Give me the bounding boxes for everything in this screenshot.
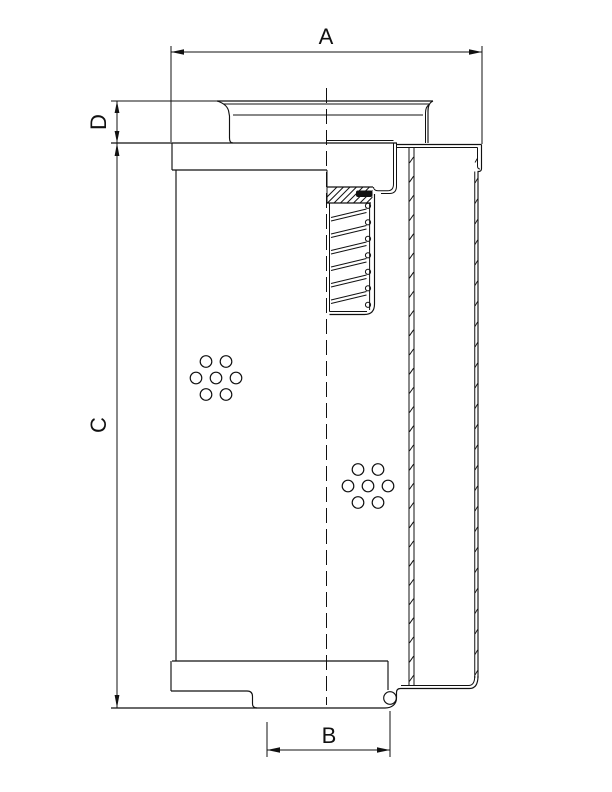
dimension-a: A: [171, 24, 482, 144]
pleated-media: [409, 148, 414, 686]
thread-flanks: [331, 209, 367, 304]
shell-seam-marks: [475, 158, 478, 675]
drawing-page: A D C B: [0, 0, 612, 792]
perforation-hole: [230, 372, 242, 384]
dim-a-arrow-right: [469, 49, 482, 54]
technical-drawing-canvas: A D C B: [0, 0, 612, 792]
perforation-hole: [220, 389, 232, 401]
perforation-hole: [220, 356, 232, 368]
perforation-hole: [190, 372, 202, 384]
dimension-c: C: [86, 101, 119, 708]
perforation-hole: [362, 480, 374, 492]
perforation-hole: [372, 497, 384, 509]
dim-c-label: C: [86, 417, 111, 433]
perforation-hole: [382, 480, 394, 492]
dim-a-arrow-left: [171, 49, 184, 54]
dim-b-label: B: [322, 723, 337, 748]
top-flange: [217, 101, 433, 143]
o-ring: [384, 692, 397, 705]
perforation-hole: [200, 389, 212, 401]
top-end-cap: [111, 141, 397, 204]
flange-left-side: [217, 101, 233, 143]
dim-c-arrow-down: [115, 695, 120, 708]
cap-inner-wall-left: [374, 143, 394, 191]
perforation-hole: [352, 464, 364, 476]
perforation-hole: [210, 372, 222, 384]
perforation-hole: [372, 464, 384, 476]
perforation-hole: [342, 480, 354, 492]
pleat-marks: [409, 157, 413, 681]
seal-ring: [356, 191, 373, 198]
section-hatching: [320, 186, 390, 204]
dimension-b: B: [267, 711, 390, 757]
flange-right-side-outer: [428, 101, 433, 143]
dim-b-arrow-right: [377, 747, 390, 752]
bottom-end-cap: [111, 661, 401, 708]
hole-pattern-upper: [190, 356, 242, 401]
dim-c-arrow-up: [115, 143, 120, 156]
dim-a-label: A: [319, 24, 334, 49]
cap-inner-wall-right: [381, 143, 397, 194]
thread-boss: [320, 186, 390, 315]
dim-d-label: D: [86, 114, 111, 130]
bottom-cap-right-corner: [385, 689, 401, 709]
bottom-cap-step: [247, 691, 257, 708]
dim-b-arrow-left: [267, 747, 280, 752]
perforation-hole: [200, 356, 212, 368]
perforation-hole: [352, 497, 364, 509]
dimension-d: D: [86, 101, 219, 143]
hole-pattern-lower: [342, 464, 394, 509]
outer-shell-section: [397, 145, 482, 689]
